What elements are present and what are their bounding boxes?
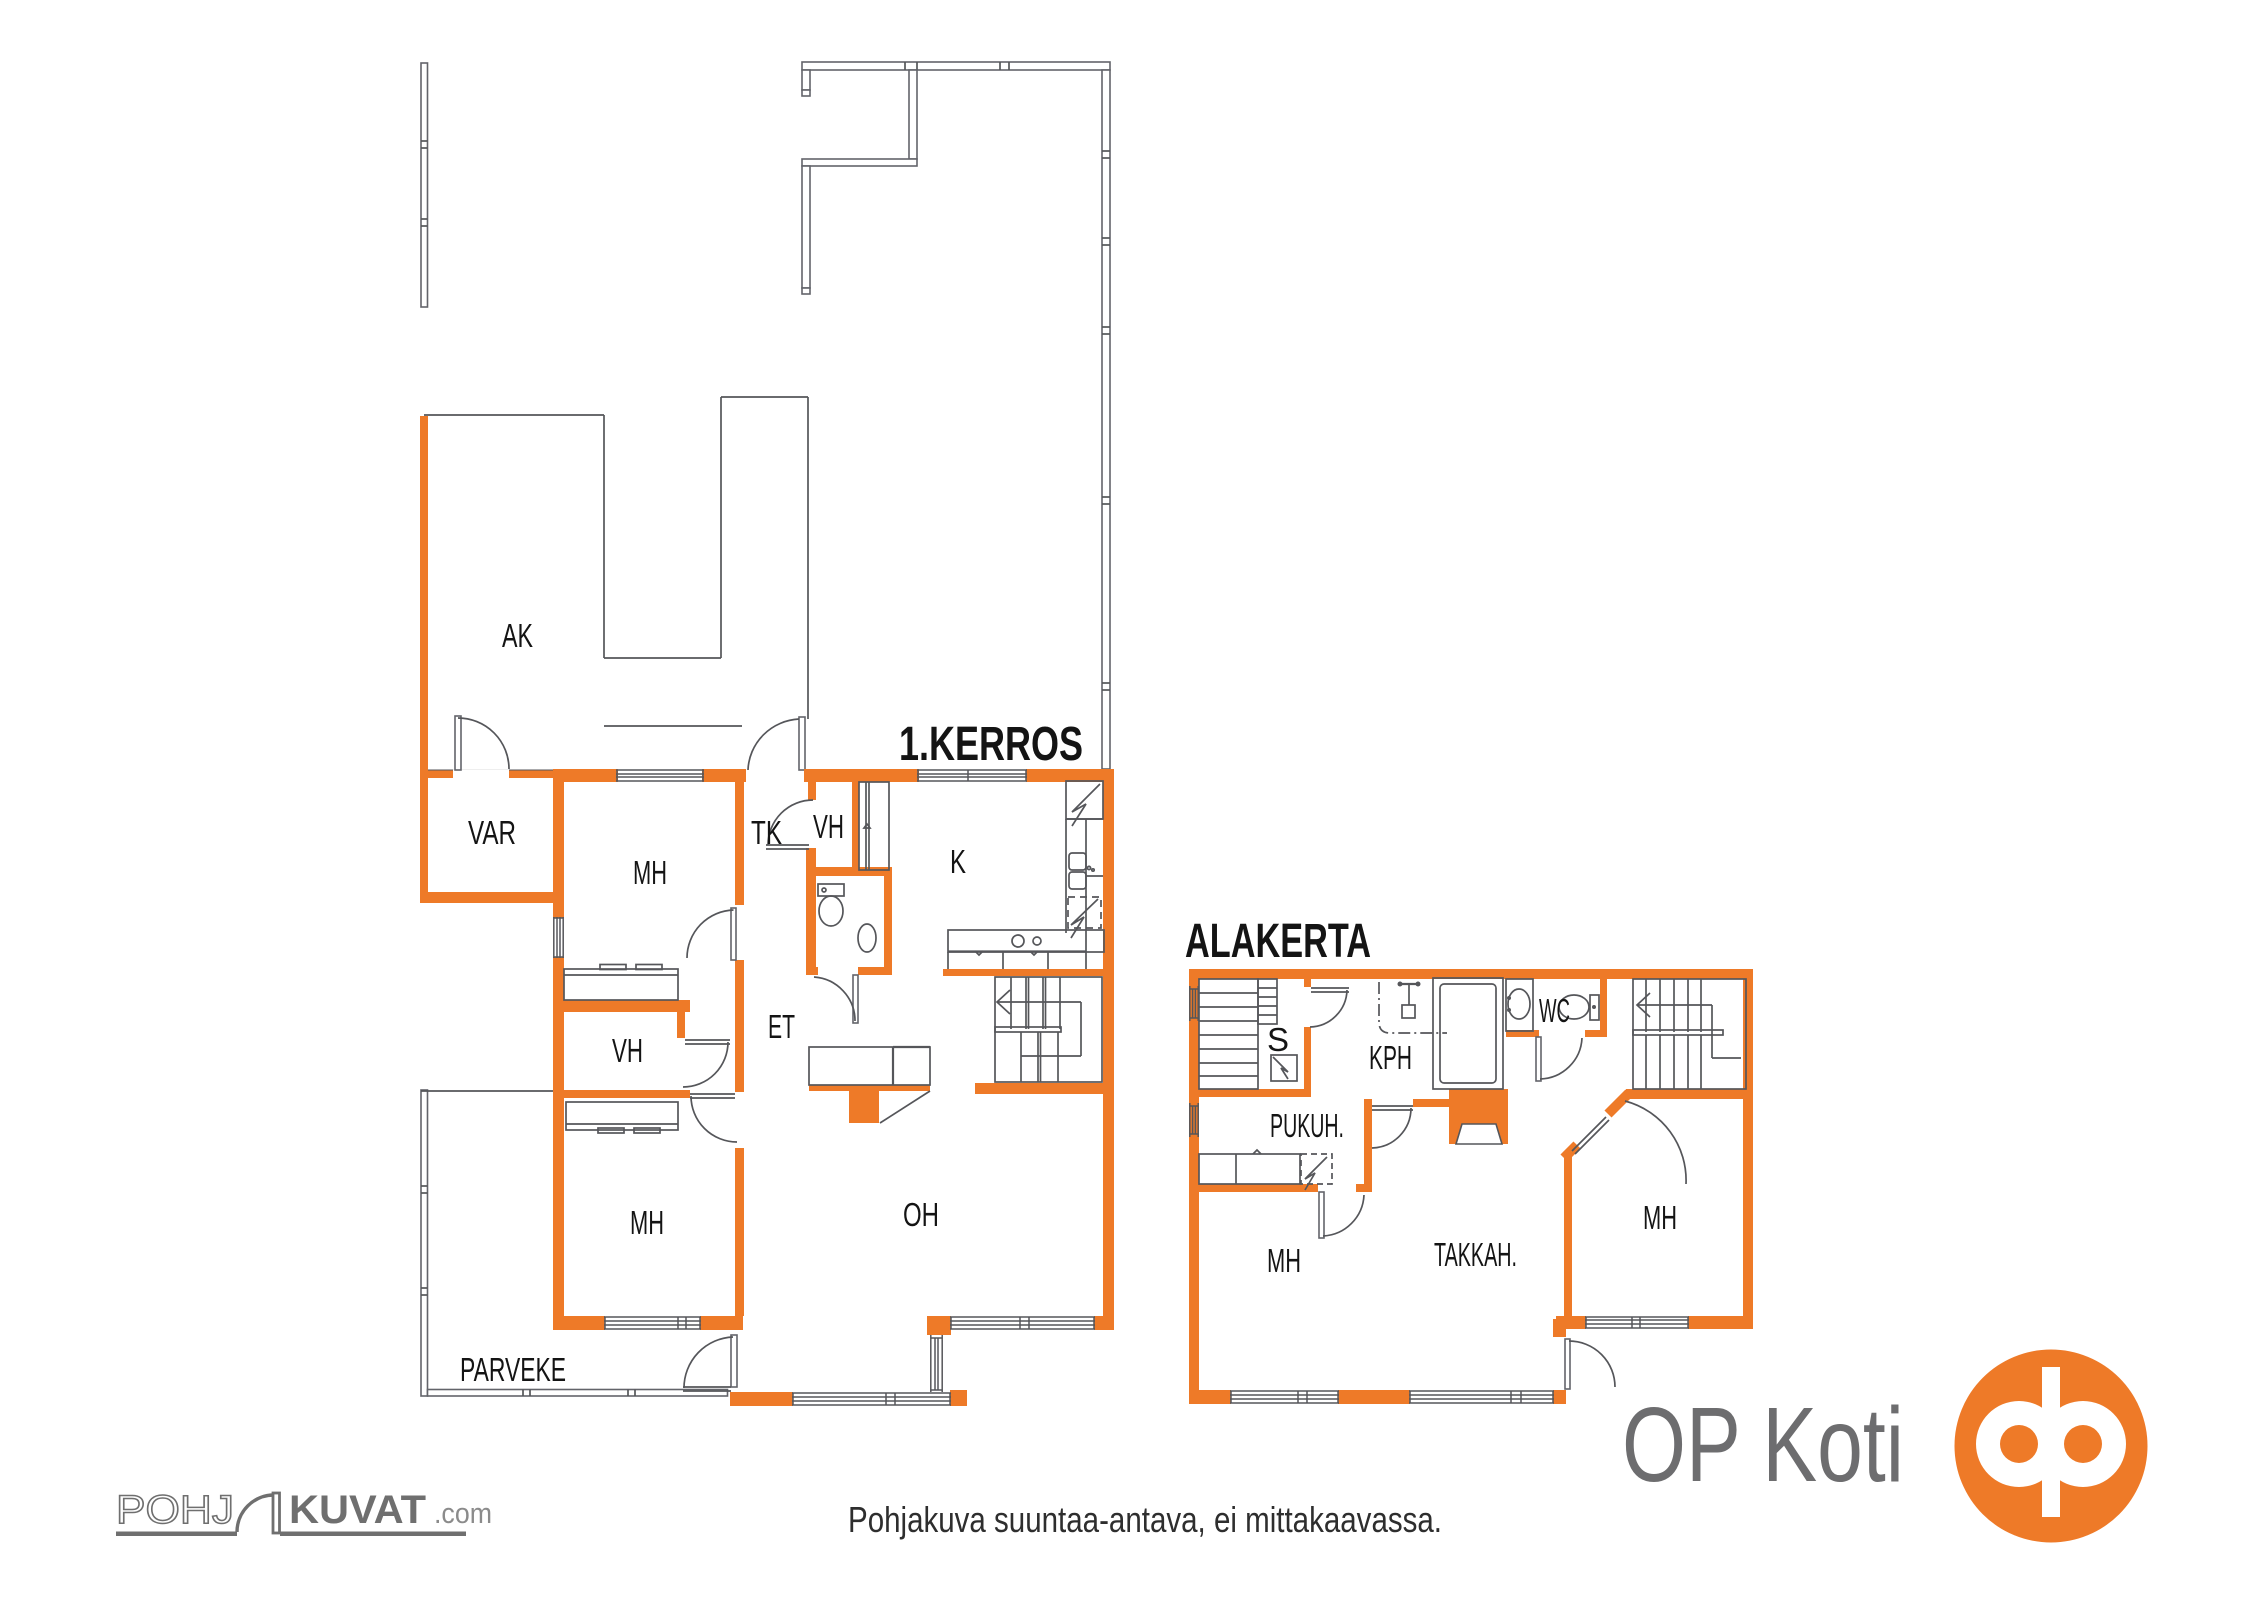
- svg-text:.com: .com: [434, 1498, 492, 1530]
- svg-text:MH: MH: [633, 854, 667, 891]
- svg-text:TAKKAH.: TAKKAH.: [1434, 1236, 1517, 1273]
- svg-text:VAR: VAR: [468, 814, 516, 851]
- svg-text:OH: OH: [903, 1196, 939, 1233]
- svg-text:1.KERROS: 1.KERROS: [899, 718, 1083, 771]
- svg-text:KPH: KPH: [1369, 1039, 1412, 1076]
- svg-text:Pohjakuva suuntaa-antava, ei m: Pohjakuva suuntaa-antava, ei mittakaavas…: [848, 1499, 1442, 1540]
- svg-text:MH: MH: [1267, 1242, 1301, 1279]
- svg-text:AK: AK: [502, 617, 533, 654]
- svg-text:S: S: [1267, 1021, 1289, 1058]
- svg-text:PARVEKE: PARVEKE: [460, 1351, 566, 1388]
- svg-text:TK: TK: [751, 814, 782, 851]
- svg-text:MH: MH: [630, 1204, 664, 1241]
- svg-text:KUVAT: KUVAT: [289, 1488, 426, 1532]
- svg-text:OP Koti: OP Koti: [1622, 1386, 1904, 1504]
- svg-text:VH: VH: [813, 808, 844, 845]
- svg-text:K: K: [950, 843, 966, 880]
- svg-text:POHJ: POHJ: [116, 1488, 234, 1532]
- svg-text:PUKUH.: PUKUH.: [1270, 1107, 1344, 1144]
- svg-text:MH: MH: [1643, 1199, 1677, 1236]
- svg-text:ALAKERTA: ALAKERTA: [1185, 915, 1371, 968]
- svg-text:ET: ET: [768, 1008, 795, 1045]
- svg-text:WC: WC: [1539, 992, 1570, 1029]
- svg-text:VH: VH: [612, 1032, 643, 1069]
